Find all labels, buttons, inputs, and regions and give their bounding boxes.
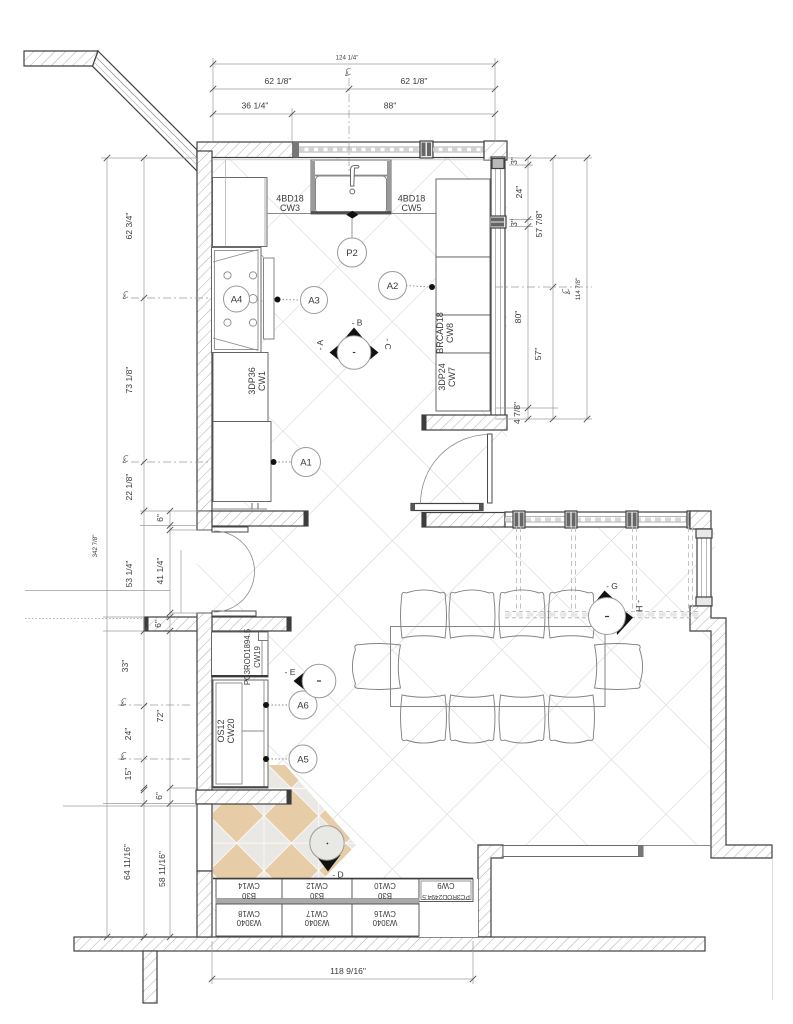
svg-text:62 1/8": 62 1/8"	[401, 76, 428, 86]
svg-text:W3040: W3040	[236, 918, 261, 927]
svg-text:B30: B30	[241, 891, 256, 900]
svg-text:24": 24"	[123, 728, 133, 741]
svg-text:CW12: CW12	[306, 881, 328, 890]
svg-text:124 1/4": 124 1/4"	[336, 55, 359, 62]
svg-text:53 1/4": 53 1/4"	[124, 561, 134, 588]
svg-text:CW17: CW17	[306, 909, 328, 918]
svg-text:24": 24"	[514, 186, 524, 199]
svg-text:B30: B30	[309, 891, 324, 900]
svg-text:4 7/8": 4 7/8"	[512, 402, 522, 424]
svg-text:BRCAD18: BRCAD18	[435, 312, 445, 354]
svg-text:OS12: OS12	[216, 719, 226, 742]
svg-text:58 11/16": 58 11/16"	[157, 851, 167, 887]
svg-text:A5: A5	[297, 755, 309, 766]
svg-text:6": 6"	[153, 620, 163, 628]
svg-text:- E: - E	[285, 667, 296, 677]
svg-text:22 1/8": 22 1/8"	[124, 474, 134, 501]
svg-text:A4: A4	[231, 295, 243, 306]
svg-text:118 9/16": 118 9/16"	[330, 966, 366, 976]
svg-text:P2: P2	[346, 248, 358, 259]
svg-text:15": 15"	[123, 768, 133, 781]
svg-text:CW14: CW14	[238, 881, 260, 890]
svg-text:57": 57"	[533, 348, 543, 361]
svg-text:PC3ROD1894.5: PC3ROD1894.5	[243, 628, 252, 685]
svg-text:114 7/8": 114 7/8"	[575, 278, 582, 300]
svg-text:- D: - D	[332, 870, 343, 880]
svg-text:CW18: CW18	[238, 909, 260, 918]
svg-text:6": 6"	[154, 792, 164, 800]
svg-text:64 11/16": 64 11/16"	[122, 844, 132, 880]
svg-text:4BD18: 4BD18	[398, 194, 426, 204]
svg-text:CW19: CW19	[253, 646, 262, 668]
svg-text:- G: - G	[606, 581, 618, 591]
svg-text:CW16: CW16	[374, 909, 396, 918]
svg-text:B30: B30	[377, 891, 392, 900]
svg-text:A3: A3	[308, 296, 320, 307]
svg-text:342 7/8": 342 7/8"	[92, 535, 99, 558]
svg-text:3": 3"	[509, 157, 519, 165]
svg-text:A6: A6	[297, 701, 309, 712]
svg-text:80": 80"	[513, 311, 523, 324]
svg-text:72": 72"	[155, 710, 165, 723]
svg-text:3DP36: 3DP36	[247, 367, 257, 395]
svg-text:- B: - B	[352, 318, 363, 328]
svg-text:57 7/8": 57 7/8"	[534, 211, 544, 238]
svg-text:73 1/8": 73 1/8"	[124, 367, 134, 394]
svg-text:CW3: CW3	[280, 203, 300, 213]
svg-text:CW9: CW9	[437, 881, 454, 890]
svg-text:A1: A1	[300, 458, 312, 469]
svg-text:CW1: CW1	[257, 371, 267, 391]
svg-text:W3040: W3040	[304, 918, 329, 927]
svg-text:CW20: CW20	[226, 718, 236, 743]
svg-text:W3040: W3040	[372, 918, 397, 927]
svg-text:- A: - A	[315, 339, 325, 350]
svg-text:88": 88"	[384, 101, 397, 111]
svg-text:PC3ROD2494.5: PC3ROD2494.5	[422, 893, 470, 900]
svg-text:62 1/8": 62 1/8"	[265, 76, 292, 86]
svg-text:CW8: CW8	[445, 323, 455, 343]
svg-text:- H: - H	[634, 600, 644, 612]
svg-text:62 3/4": 62 3/4"	[124, 213, 134, 240]
svg-text:36 1/4": 36 1/4"	[242, 101, 269, 111]
svg-text:41 1/4": 41 1/4"	[155, 558, 165, 585]
svg-text:A2: A2	[387, 281, 399, 292]
svg-text:6": 6"	[155, 514, 165, 522]
svg-text:33": 33"	[120, 660, 130, 673]
svg-text:CW7: CW7	[447, 367, 457, 387]
svg-text:4BD18: 4BD18	[276, 194, 304, 204]
svg-text:3": 3"	[509, 219, 519, 227]
svg-text:CW10: CW10	[374, 881, 396, 890]
svg-text:3DP24: 3DP24	[437, 363, 447, 391]
svg-text:- C: - C	[383, 338, 393, 349]
svg-text:CW5: CW5	[402, 203, 422, 213]
